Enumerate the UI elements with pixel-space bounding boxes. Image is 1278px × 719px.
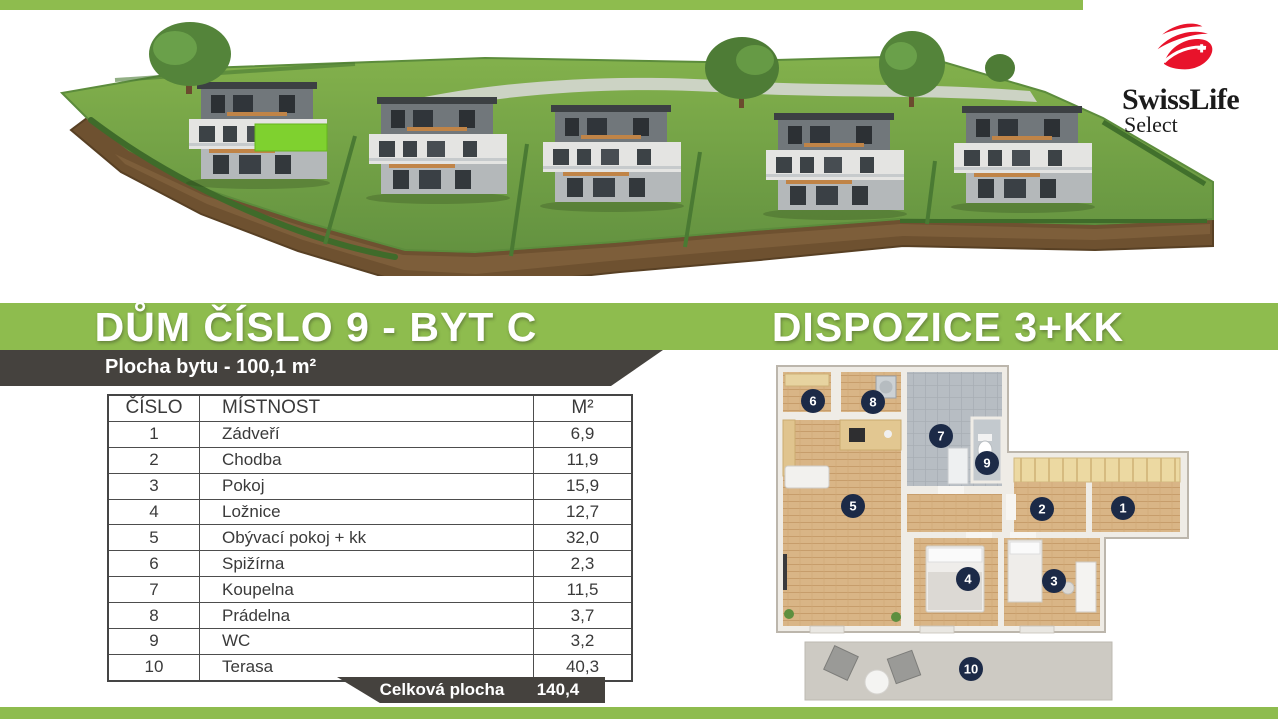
house-unit-title: DŮM ČÍSLO 9 - BYT C — [0, 303, 632, 350]
room-number: 3 — [108, 473, 200, 499]
room-area: 40,3 — [534, 654, 633, 680]
highlighted-unit-overlay — [255, 124, 327, 151]
room-name: WC — [200, 629, 534, 655]
room-area: 32,0 — [534, 525, 633, 551]
bush — [985, 54, 1015, 82]
brand-subname: Select — [1124, 114, 1250, 136]
brand-name: SwissLife — [1122, 86, 1250, 114]
header-number: ČÍSLO — [108, 395, 200, 421]
room-number: 5 — [108, 525, 200, 551]
room-area: 3,2 — [534, 629, 633, 655]
room-area: 11,5 — [534, 577, 633, 603]
room-name: Spižírna — [200, 551, 534, 577]
total-area-band: Celková plocha 140,4 — [337, 677, 605, 703]
room-name: Zádveří — [200, 421, 534, 447]
table-row: 10Terasa40,3 — [108, 654, 632, 680]
room-marker-8: 8 — [869, 395, 876, 410]
apartment-area-label: Plocha bytu - 100,1 m² — [105, 350, 316, 385]
floorplan-illustration: 1 2 3 4 5 6 7 8 9 10 — [770, 362, 1195, 707]
room-area: 11,9 — [534, 447, 633, 473]
total-area-value: 140,4 — [523, 677, 593, 703]
room-marker-9: 9 — [983, 456, 990, 471]
header-area: M² — [534, 395, 633, 421]
swisslife-logo-icon — [1152, 20, 1218, 84]
room-number: 7 — [108, 577, 200, 603]
table-row: 7Koupelna11,5 — [108, 577, 632, 603]
room-name: Chodba — [200, 447, 534, 473]
room-marker-5: 5 — [849, 499, 856, 514]
room-area: 12,7 — [534, 499, 633, 525]
table-row: 2Chodba11,9 — [108, 447, 632, 473]
room-marker-1: 1 — [1119, 501, 1126, 516]
room-marker-7: 7 — [937, 429, 944, 444]
top-accent-strip — [0, 0, 1083, 10]
room-number: 1 — [108, 421, 200, 447]
room-area: 2,3 — [534, 551, 633, 577]
room-marker-4: 4 — [964, 572, 972, 587]
room-name: Ložnice — [200, 499, 534, 525]
table-row: 3Pokoj15,9 — [108, 473, 632, 499]
room-name: Obývací pokoj + kk — [200, 525, 534, 551]
room-marker-6: 6 — [809, 394, 816, 409]
room-area: 15,9 — [534, 473, 633, 499]
apartment-area-banner: Plocha bytu - 100,1 m² — [0, 350, 663, 386]
bottom-accent-strip — [0, 707, 1278, 719]
table-header-row: ČÍSLO MÍSTNOST M² — [108, 395, 632, 421]
brochure-page: SwissLife Select DŮM ČÍSLO 9 - BYT C DIS… — [0, 0, 1278, 719]
room-number: 4 — [108, 499, 200, 525]
total-area-label: Celková plocha — [367, 677, 517, 703]
layout-title: DISPOZICE 3+KK — [648, 303, 1248, 350]
site-render-illustration — [55, 14, 1215, 276]
room-number: 2 — [108, 447, 200, 473]
table-row: 1Zádveří6,9 — [108, 421, 632, 447]
table-row: 4Ložnice12,7 — [108, 499, 632, 525]
table-row: 5Obývací pokoj + kk32,0 — [108, 525, 632, 551]
room-marker-10: 10 — [964, 662, 978, 677]
room-number: 10 — [108, 654, 200, 680]
room-number: 8 — [108, 603, 200, 629]
brand-logo: SwissLife Select — [1122, 20, 1250, 136]
room-name: Terasa — [200, 654, 534, 680]
room-table: ČÍSLO MÍSTNOST M² 1Zádveří6,9 2Chodba11,… — [107, 394, 633, 682]
room-area: 3,7 — [534, 603, 633, 629]
room-name: Koupelna — [200, 577, 534, 603]
room-number: 9 — [108, 629, 200, 655]
table-row: 8Prádelna3,7 — [108, 603, 632, 629]
table-row: 6Spižírna2,3 — [108, 551, 632, 577]
room-name: Prádelna — [200, 603, 534, 629]
room-name: Pokoj — [200, 473, 534, 499]
room-marker-3: 3 — [1050, 574, 1057, 589]
header-room: MÍSTNOST — [200, 395, 534, 421]
title-banner: DŮM ČÍSLO 9 - BYT C DISPOZICE 3+KK — [0, 303, 1278, 350]
room-number: 6 — [108, 551, 200, 577]
table-row: 9WC3,2 — [108, 629, 632, 655]
room-marker-2: 2 — [1038, 502, 1045, 517]
room-area: 6,9 — [534, 421, 633, 447]
